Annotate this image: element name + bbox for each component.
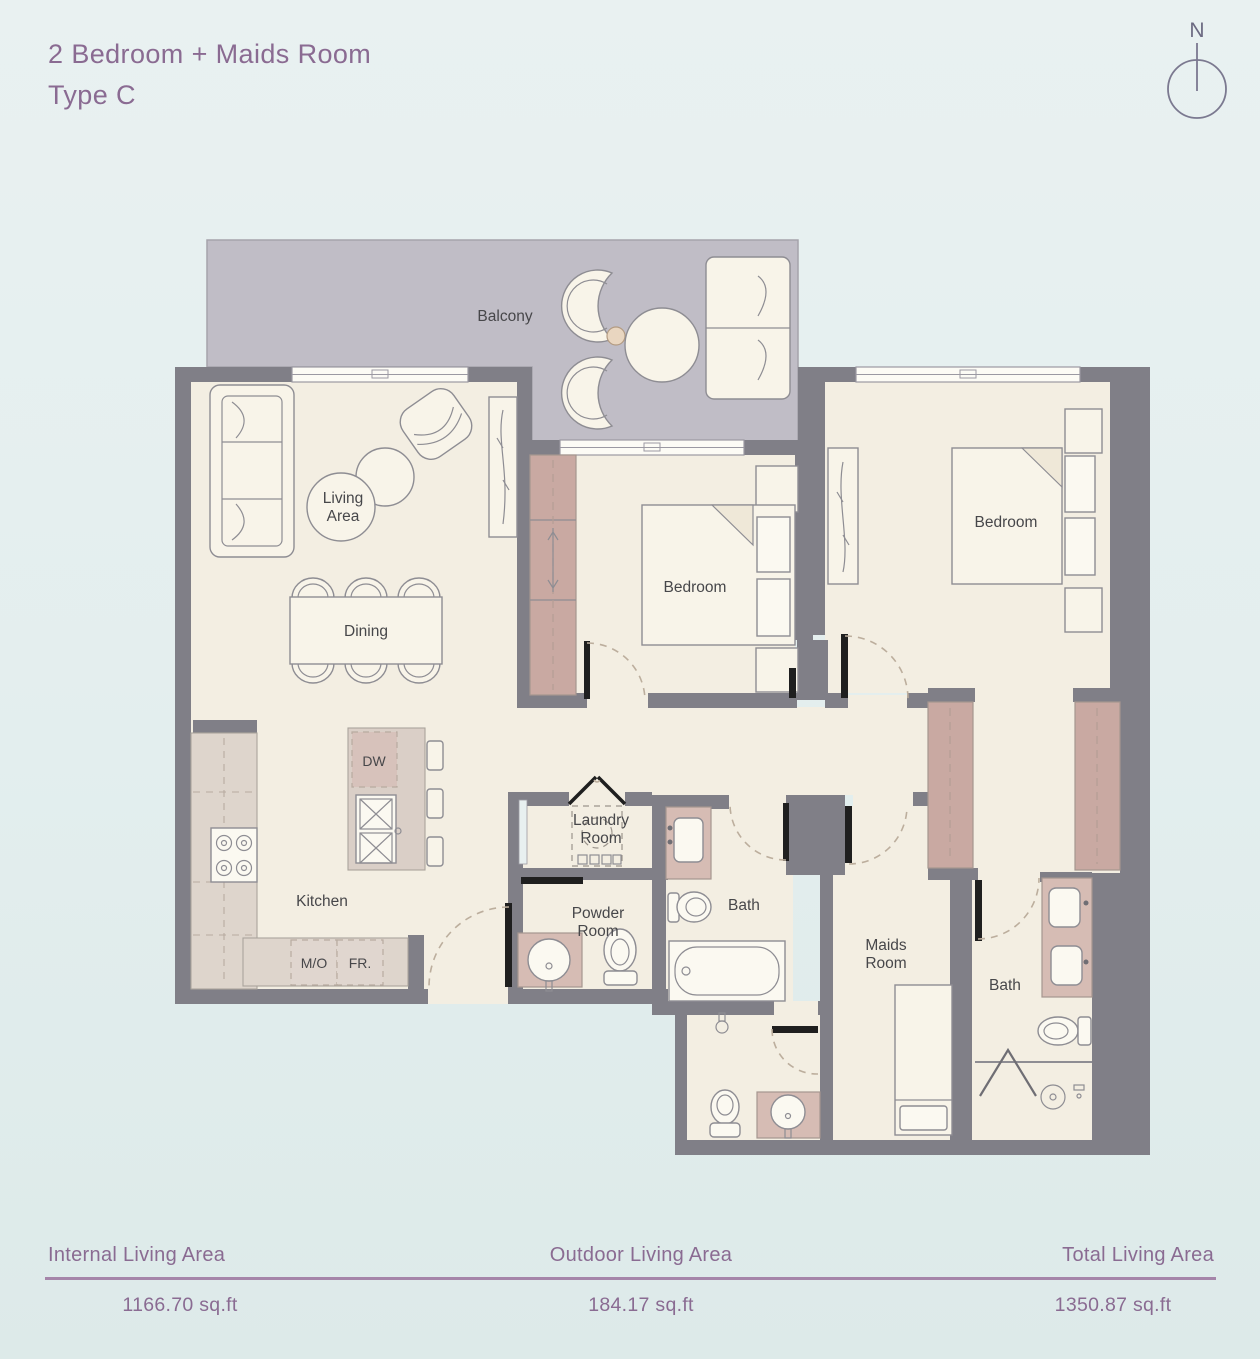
floorplan-page: 2 Bedroom + Maids Room Type C N [0, 0, 1260, 1359]
hall-door-leaf [789, 668, 796, 698]
label-bedroom-2: Bedroom [975, 514, 1038, 531]
unit-type-title: 2 Bedroom + Maids Room [48, 34, 371, 75]
stove [211, 828, 257, 882]
bar-stool [427, 837, 443, 866]
toilet [710, 1090, 740, 1137]
page-title: 2 Bedroom + Maids Room Type C [48, 34, 371, 116]
internal-living-area-label: Internal Living Area [48, 1244, 225, 1267]
label-living-1: Living [323, 490, 364, 507]
label-bath-2: Bath [989, 977, 1021, 994]
label-maids-2: Room [865, 955, 906, 972]
dresser [828, 448, 858, 584]
nightstand [1065, 588, 1102, 632]
total-living-area-value: 1350.87 sq.ft [1055, 1294, 1172, 1317]
outdoor-living-area-label: Outdoor Living Area [550, 1244, 732, 1267]
label-kitchen: Kitchen [296, 893, 348, 910]
label-bath-1: Bath [728, 897, 760, 914]
unit-type-code: Type C [48, 75, 371, 116]
label-balcony: Balcony [477, 308, 532, 325]
label-living-2: Area [327, 508, 360, 525]
label-fridge: FR. [349, 955, 372, 971]
pouf [307, 473, 375, 541]
bar-stool [427, 789, 443, 818]
balcony-sofa [706, 257, 790, 399]
label-powder-2: Room [577, 923, 618, 940]
kitchen-island [348, 728, 425, 870]
total-living-area-label: Total Living Area [1062, 1244, 1214, 1267]
label-microwave-oven: M/O [301, 955, 328, 971]
bed [642, 505, 795, 645]
label-bedroom-1: Bedroom [664, 579, 727, 596]
powder-sliding-door [521, 877, 583, 884]
sink [1049, 888, 1080, 927]
bar-stool [427, 741, 443, 770]
label-maids-1: Maids [865, 937, 907, 954]
balcony-side-table [607, 327, 625, 345]
label-dining: Dining [344, 623, 388, 640]
north-compass-icon: N [1130, 10, 1260, 160]
round-basin [771, 1095, 805, 1129]
living-window [292, 367, 468, 382]
balcony-table [625, 308, 699, 382]
kitchen-sink [356, 795, 401, 863]
tv-console [489, 397, 517, 537]
internal-living-area-value: 1166.70 sq.ft [122, 1294, 237, 1317]
toilet [668, 892, 711, 922]
floor-plan: Balcony Living Area Dining Kitchen Bedro… [0, 0, 1260, 1359]
maids-room-furniture [895, 985, 952, 1135]
nightstand [1065, 409, 1102, 453]
bathtub [669, 941, 785, 1001]
round-basin [528, 939, 570, 981]
label-dishwasher: DW [362, 753, 386, 769]
label-powder-1: Powder [572, 905, 625, 922]
sink [1051, 946, 1082, 985]
bedroom-window [856, 367, 1080, 382]
single-bed [895, 985, 952, 1135]
bedroom-window [560, 440, 744, 455]
wardrobe [1075, 702, 1120, 870]
compass-north-label: N [1189, 19, 1204, 42]
wardrobe [928, 702, 973, 868]
laundry-cabinet [519, 800, 527, 864]
label-laundry-1: Laundry [573, 812, 629, 829]
label-laundry-2: Room [580, 830, 621, 847]
outdoor-living-area-value: 184.17 sq.ft [588, 1294, 694, 1317]
stats-divider [45, 1277, 1216, 1280]
wardrobe [530, 455, 576, 695]
sink [674, 818, 703, 862]
sofa [210, 385, 294, 557]
toilet [1038, 1017, 1091, 1045]
